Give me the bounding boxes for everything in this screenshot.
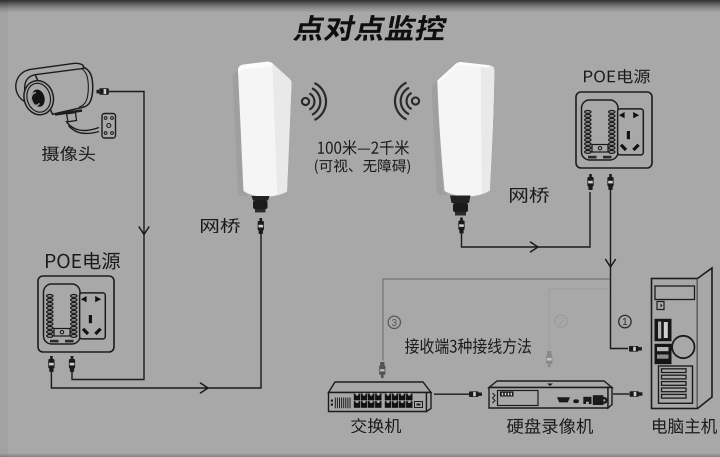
svg-text:3: 3 bbox=[392, 318, 398, 329]
svg-text:2: 2 bbox=[558, 317, 564, 328]
svg-text:1: 1 bbox=[622, 317, 628, 328]
